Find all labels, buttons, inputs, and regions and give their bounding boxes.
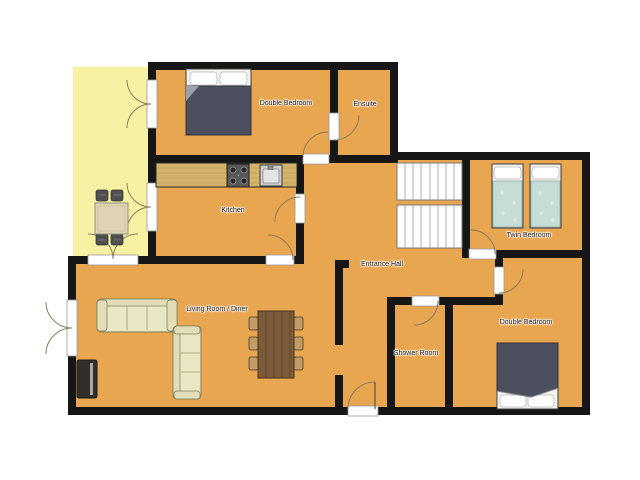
tv-icon [77,360,97,398]
double-bed-icon [186,69,251,135]
twin-bed-icon [530,164,561,228]
room-label-double-bedroom-bottom: Double Bedroom [500,319,553,327]
twin-bed-icon [492,164,523,228]
stove-icon [227,164,249,187]
room-label-ensuite: Ensuite [353,101,376,109]
sofa-icon [173,326,201,399]
door-icon [303,154,329,164]
kitchen-counter-icon [156,163,297,187]
entrance-door-icon [348,406,378,416]
dining-table-icon [249,311,303,378]
room-label-kitchen: Kitchen [221,207,244,215]
room-label-shower-room: Shower Room [394,350,438,358]
door-icon [295,194,305,223]
room-label-living-room-diner: Living Room / Diner [186,306,247,314]
door-icon [412,296,439,306]
floor-plan-canvas: Double Bedroom Ensuite Kitchen Entrance … [0,0,640,480]
sofa-icon [97,299,177,332]
door-icon [329,113,339,140]
double-bed-icon [497,343,558,409]
door-icon [266,255,294,265]
patio-table-icon [95,190,128,245]
floor-plan-drawing [0,0,640,480]
room-label-double-bedroom-top: Double Bedroom [260,100,313,108]
stairs-icon [397,163,462,248]
room-label-entrance-hall: Entrance Hall [361,261,403,269]
door-icon [494,267,504,294]
door-icon [469,249,496,259]
sink-icon [260,165,282,187]
room-label-twin-bedroom: Twin Bedroom [507,232,552,240]
